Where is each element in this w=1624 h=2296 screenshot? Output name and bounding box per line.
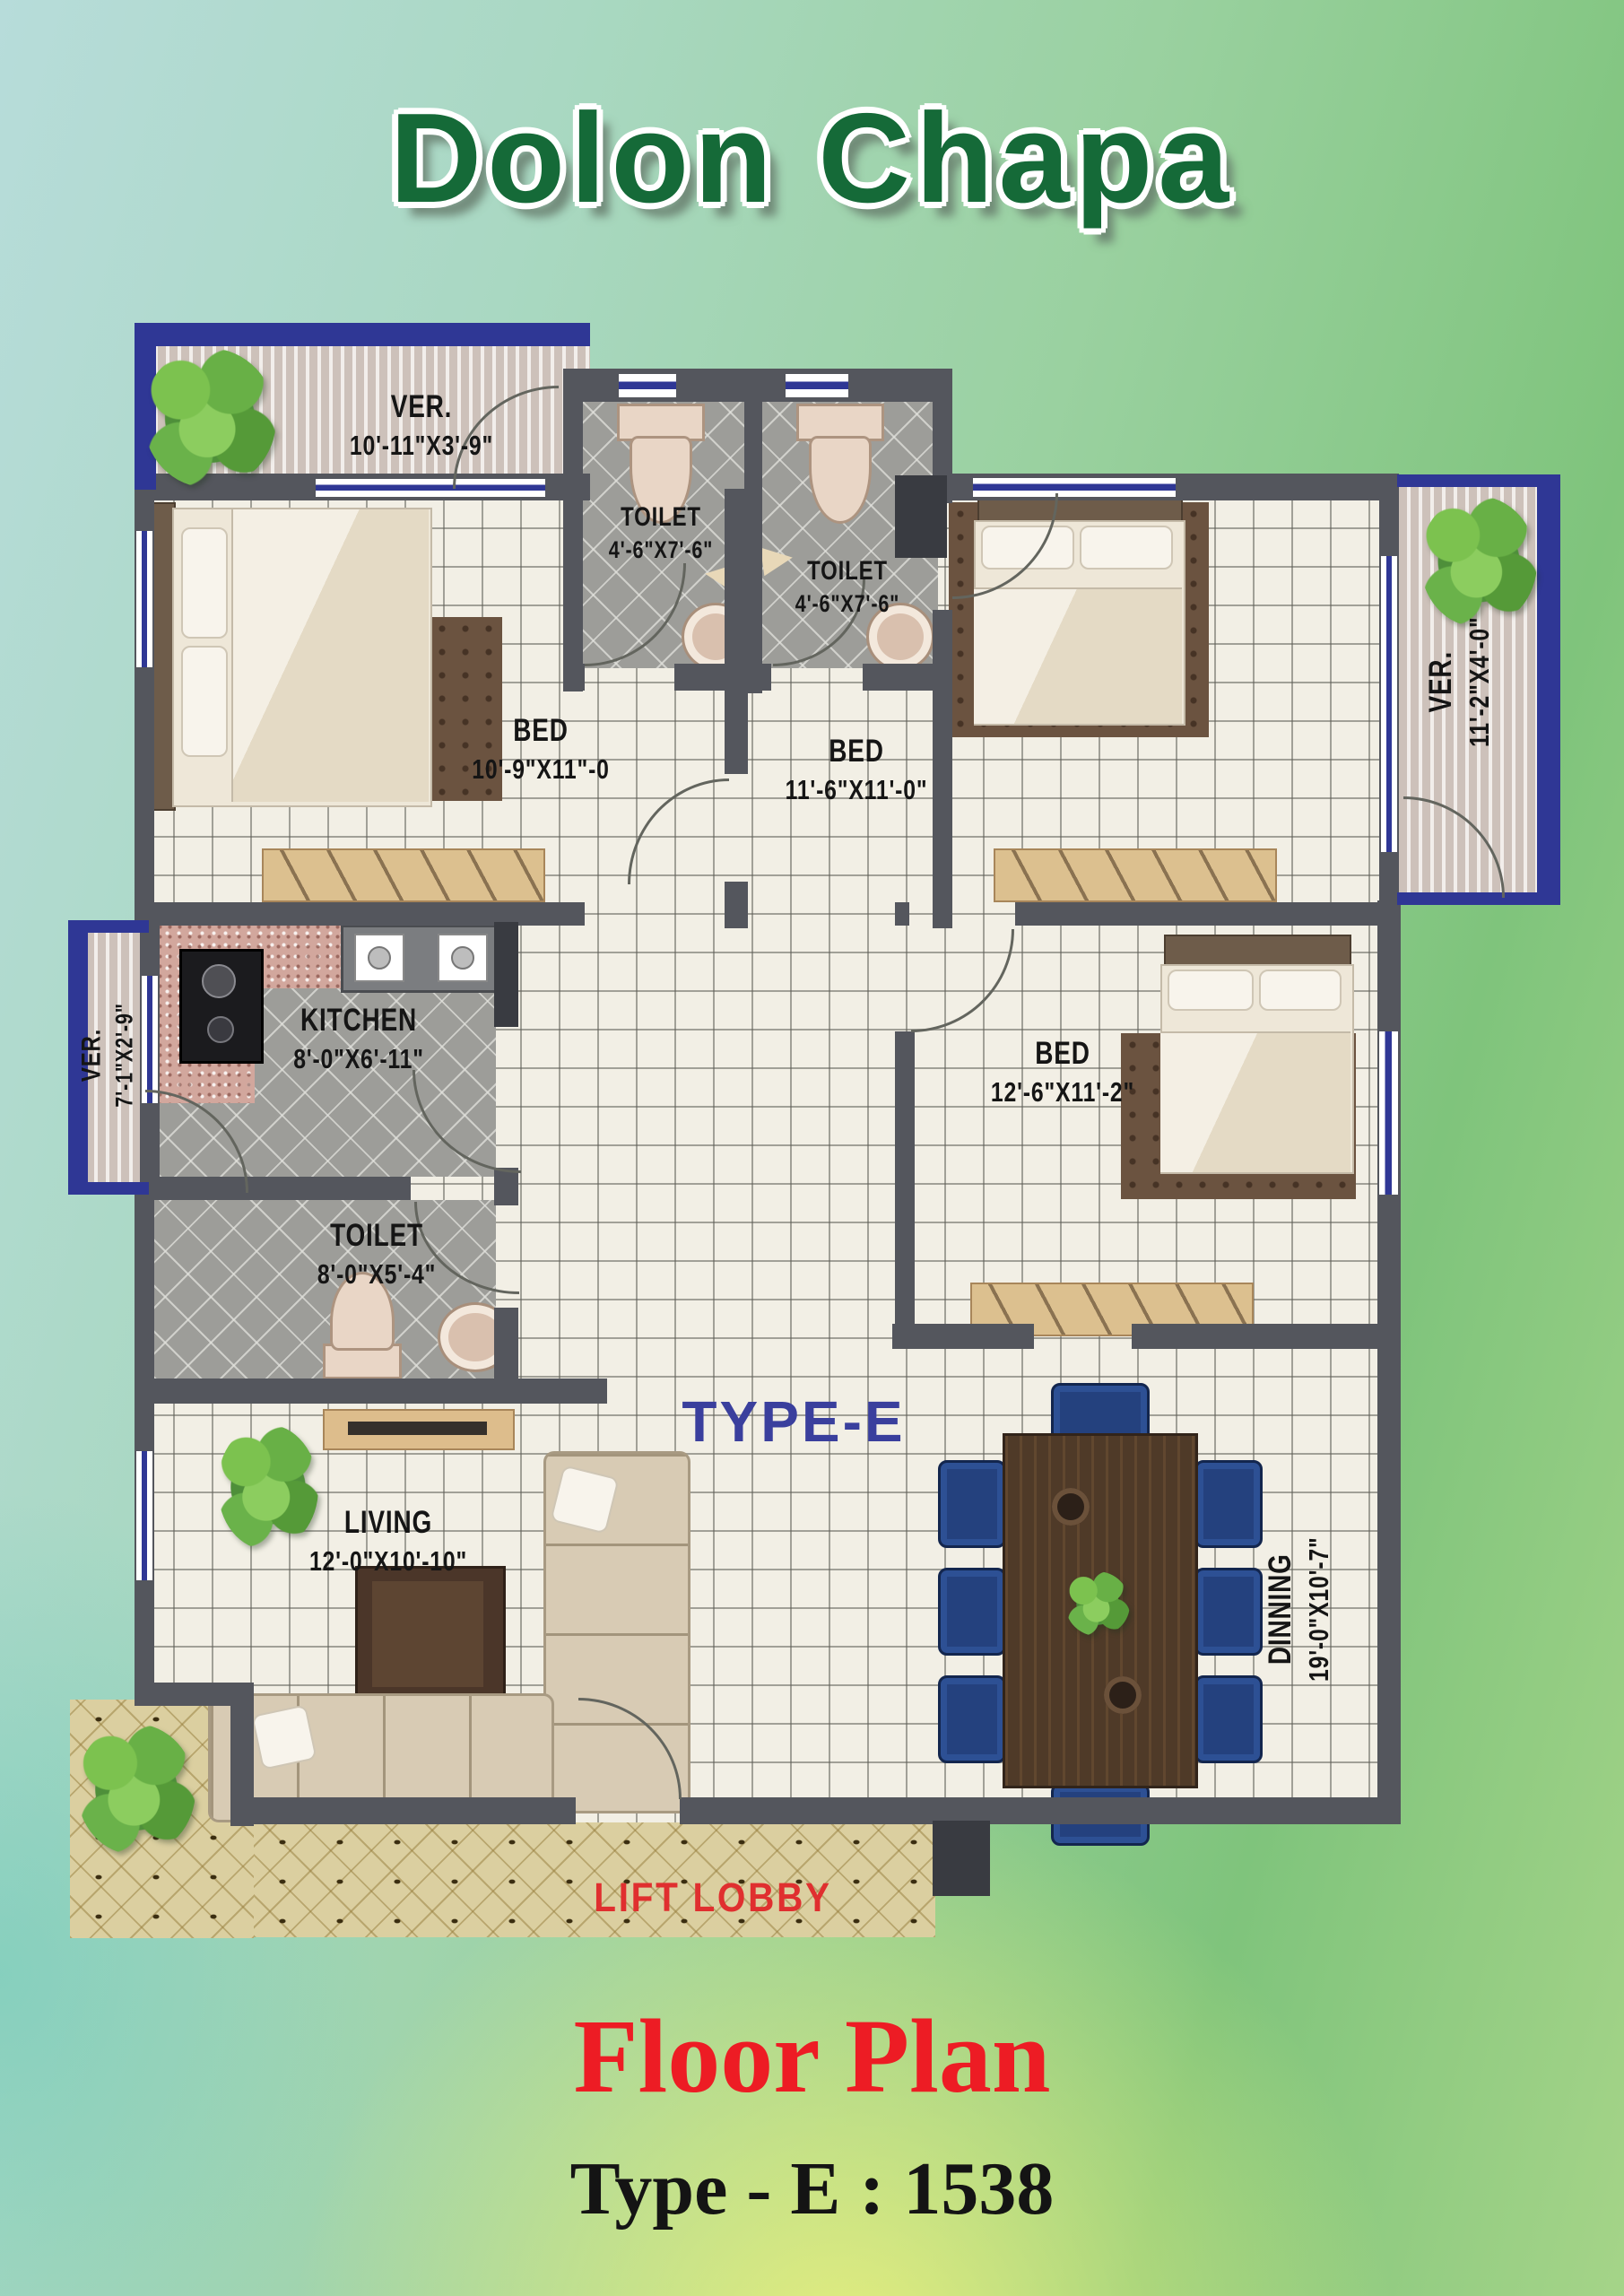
room-name: DINNING	[1261, 1494, 1301, 1724]
lift-lobby-label: LIFT LOBBY	[551, 1874, 874, 1921]
room-label-bed-c: BED 12'-6"X11'-2"	[955, 1034, 1170, 1109]
blanket-icon	[231, 509, 429, 802]
room-name: BED	[433, 711, 648, 752]
wall	[751, 1797, 1401, 1824]
footer-heading: Floor Plan	[0, 1996, 1624, 2118]
wall	[1132, 1324, 1399, 1349]
window	[619, 374, 676, 397]
coffee-table-icon	[355, 1566, 506, 1708]
room-dims: 11'-6"X11'-0"	[749, 772, 964, 808]
room-dims: 11'-2"X4'-0"	[1462, 574, 1498, 789]
room-dims: 8'-0"X5'-4"	[262, 1257, 491, 1292]
room-dims: 4'-6"X7'-6"	[772, 588, 923, 620]
wall	[895, 902, 909, 926]
room-dims: 10'-11"X3'-9"	[307, 428, 536, 464]
wall	[892, 1324, 1034, 1349]
room-label-ver-top: VER. 10'-11"X3'-9"	[307, 387, 536, 463]
dining-chair-icon	[1194, 1675, 1263, 1763]
room-name: KITCHEN	[244, 1001, 473, 1041]
type-watermark: TYPE-E	[659, 1388, 928, 1455]
room-label-dining: DINNING 19'-0"X10'-7"	[1261, 1494, 1336, 1724]
dining-chair-icon	[938, 1675, 1006, 1763]
window	[1379, 1031, 1398, 1195]
wall	[680, 1797, 751, 1824]
dining-chair-icon	[938, 1568, 1006, 1656]
room-name: TOILET	[262, 1216, 491, 1257]
wardrobe-icon	[994, 848, 1277, 902]
window	[142, 976, 158, 1103]
wall	[494, 922, 518, 1027]
bowl-icon	[1052, 1488, 1090, 1526]
wall	[563, 369, 583, 691]
window	[786, 374, 848, 397]
room-name: BED	[955, 1034, 1170, 1074]
room-name: BED	[749, 732, 964, 772]
blanket-icon	[1160, 1031, 1350, 1172]
tv-cabinet-icon	[323, 1409, 515, 1450]
wall-pillar	[933, 1821, 990, 1896]
wall	[674, 664, 771, 691]
plant-icon	[143, 348, 276, 488]
verandah-edge	[135, 323, 590, 346]
wardrobe-icon	[262, 848, 545, 902]
room-label-bed-a: BED 10'-9"X11"-0	[433, 711, 648, 787]
room-name: LIVING	[274, 1503, 503, 1544]
room-label-toilet-c: TOILET 8'-0"X5'-4"	[262, 1216, 491, 1291]
room-dims: 12'-6"X11'-2"	[955, 1074, 1170, 1110]
room-label-toilet-a: TOILET 4'-6"X7'-6"	[586, 500, 736, 566]
sink-drain	[207, 1016, 234, 1043]
room-dims: 19'-0"X10'-7"	[1301, 1494, 1337, 1724]
room-label-ver-right: VER. 11'-2"X4'-0"	[1421, 574, 1497, 789]
blanket-icon	[974, 587, 1182, 724]
pillow-icon	[181, 646, 228, 757]
project-title: Dolon Chapa	[0, 85, 1624, 232]
pillow-icon	[1259, 970, 1342, 1011]
room-name: VER.	[75, 954, 109, 1155]
wall	[1015, 902, 1399, 926]
room-dims: 12'-0"X10'-10"	[274, 1544, 503, 1579]
plant-icon	[1065, 1571, 1130, 1636]
wall-pillar	[895, 475, 947, 558]
wall	[725, 882, 748, 928]
wall	[135, 1193, 154, 1684]
verandah-edge	[68, 1182, 149, 1195]
burner-ring	[451, 946, 474, 970]
dining-chair-icon	[1194, 1568, 1263, 1656]
wall	[895, 1031, 915, 1326]
room-name: TOILET	[772, 554, 923, 588]
room-dims: 8'-0"X6'-11"	[244, 1041, 473, 1077]
pillow-icon	[1168, 970, 1254, 1011]
footer-subheading: Type - E : 1538	[0, 2145, 1624, 2232]
room-dims: 10'-9"X11"-0	[433, 752, 648, 787]
wall	[563, 664, 585, 691]
verandah-edge	[1537, 474, 1560, 905]
table-top	[372, 1581, 483, 1687]
room-name: VER.	[307, 387, 536, 428]
tv-icon	[348, 1422, 487, 1435]
floor-plan-poster: { "title": "Dolon Chapa", "plan": { "typ…	[0, 0, 1624, 2296]
burner-ring	[368, 946, 391, 970]
room-label-bed-b: BED 11'-6"X11'-0"	[749, 732, 964, 807]
sink-drain	[202, 964, 236, 998]
dining-chair-icon	[1194, 1460, 1263, 1548]
room-name: VER.	[1421, 574, 1462, 789]
wall	[135, 1378, 607, 1404]
wall	[1377, 1353, 1401, 1824]
room-label-ver-left: VER. 7'-1"X2'-9"	[75, 954, 141, 1155]
stove-icon	[341, 925, 512, 993]
verandah-edge	[68, 920, 149, 933]
wall	[251, 1797, 576, 1824]
dining-chair-icon	[938, 1460, 1006, 1548]
room-name: TOILET	[586, 500, 736, 535]
plant-icon	[77, 1724, 195, 1855]
pillow-icon	[181, 527, 228, 639]
room-dims: 7'-1"X2'-9"	[109, 954, 141, 1155]
room-dims: 4'-6"X7'-6"	[586, 535, 736, 566]
burner-icon	[354, 934, 404, 982]
cushion-icon	[251, 1704, 317, 1770]
window	[136, 531, 152, 667]
wall	[494, 1168, 518, 1205]
verandah-edge	[1397, 474, 1541, 487]
pillow-icon	[1080, 526, 1173, 570]
room-label-kitchen: KITCHEN 8'-0"X6'-11"	[244, 1001, 473, 1076]
window	[136, 1451, 152, 1580]
room-label-living: LIVING 12'-0"X10'-10"	[274, 1503, 503, 1578]
room-label-toilet-b: TOILET 4'-6"X7'-6"	[772, 554, 923, 620]
window	[1381, 556, 1397, 852]
bowl-icon	[1104, 1676, 1142, 1714]
burner-icon	[438, 934, 488, 982]
